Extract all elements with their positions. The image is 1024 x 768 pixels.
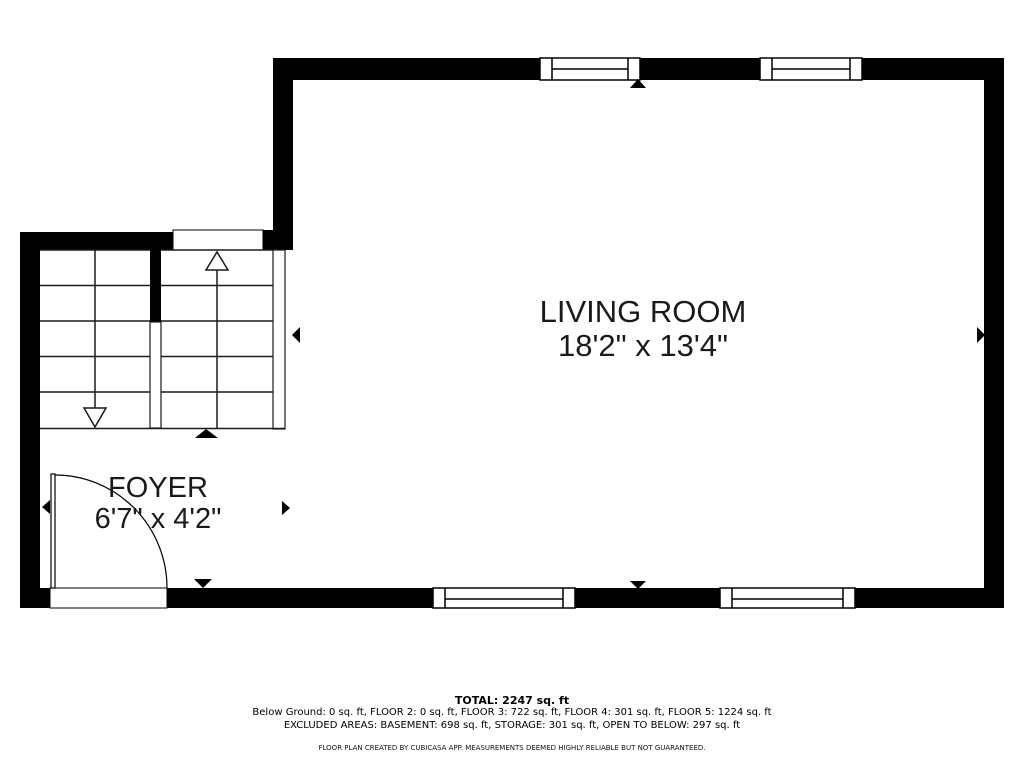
wall-livingroom-left (273, 58, 293, 250)
floor-plan-page: LIVING ROOM 18'2" x 13'4" FOYER 6'7" x 4… (0, 0, 1024, 768)
entry-door-opening (50, 588, 167, 608)
marker-right-icon (977, 327, 985, 343)
stair-arrow-up-icon (206, 252, 228, 270)
staircase-down-flight (40, 250, 150, 427)
stair-banister (273, 250, 285, 429)
foyer-name: FOYER (95, 473, 222, 504)
window-bottom-right (720, 588, 855, 608)
stair-opening (173, 230, 263, 250)
living-room-label: LIVING ROOM 18'2" x 13'4" (540, 295, 747, 363)
wall-stair-corner-block (263, 230, 293, 250)
wall-left (20, 232, 40, 608)
disclaimer: FLOOR PLAN CREATED BY CUBICASA APP. MEAS… (0, 744, 1024, 753)
window-top-right (760, 58, 862, 80)
staircase (40, 250, 285, 429)
excluded-areas: EXCLUDED AREAS: BASEMENT: 698 sq. ft, ST… (0, 720, 1024, 733)
foyer-label: FOYER 6'7" x 4'2" (95, 473, 222, 535)
staircase-up-flight (161, 250, 273, 428)
wall-stair-top (20, 232, 173, 250)
marker-left-icon (292, 327, 300, 343)
foyer-dimensions: 6'7" x 4'2" (95, 504, 222, 535)
marker-down-icon (194, 579, 212, 588)
window-bottom-left (433, 588, 575, 608)
marker-left2-icon (42, 500, 50, 514)
stair-arrow-down-icon (84, 408, 106, 427)
marker-up2-icon (195, 429, 218, 438)
window-top-left (540, 58, 640, 80)
floor-plan-drawing (0, 0, 1024, 768)
floor-areas: Below Ground: 0 sq. ft, FLOOR 2: 0 sq. f… (0, 707, 1024, 720)
wall-right (984, 58, 1004, 608)
footer-summary: TOTAL: 2247 sq. ft Below Ground: 0 sq. f… (0, 694, 1024, 753)
marker-right2-icon (282, 501, 290, 515)
door-leaf (51, 474, 55, 588)
living-room-dimensions: 18'2" x 13'4" (540, 329, 747, 363)
stair-divider-rail (150, 322, 161, 428)
marker-down2-icon (630, 581, 646, 589)
wall-stair-divider (150, 250, 161, 322)
living-room-name: LIVING ROOM (540, 295, 747, 329)
total-area: TOTAL: 2247 sq. ft (0, 694, 1024, 707)
